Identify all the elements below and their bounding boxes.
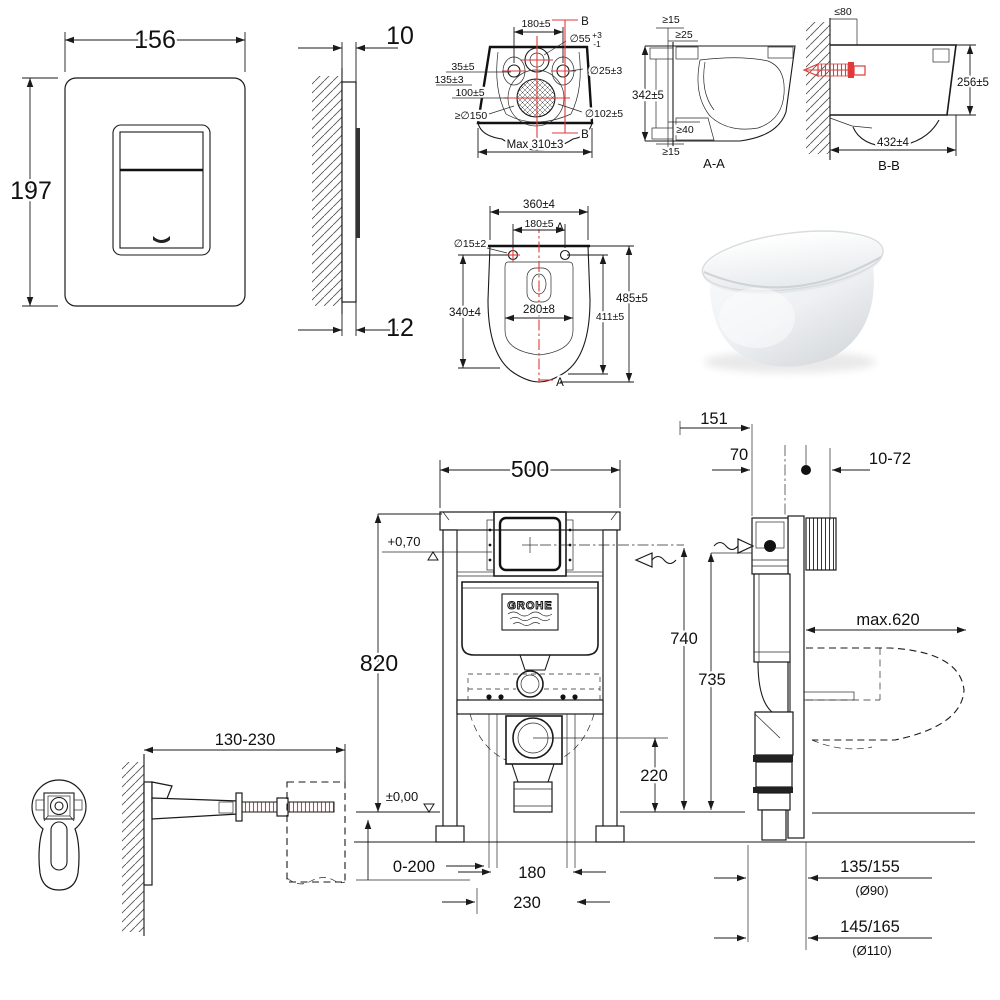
dim-bb-depth: 432±4 bbox=[877, 137, 909, 149]
dim-outlet-a: 135/155 bbox=[840, 858, 900, 876]
dim-fixing-dia: ∅25±3 bbox=[590, 65, 623, 77]
wall-section bbox=[806, 518, 836, 570]
dim-floor-adjust: 0-200 bbox=[393, 858, 435, 876]
dim-wall-panel: 10-72 bbox=[869, 450, 911, 468]
view-frame-side: 151 70 10-72 bbox=[645, 410, 975, 958]
drain-bend bbox=[506, 716, 562, 812]
level-top: +0,70 bbox=[388, 534, 421, 549]
dim-tv-340: 340±4 bbox=[449, 307, 481, 319]
wall-reference-point bbox=[801, 465, 811, 475]
technical-drawing: 156 197 10 12 bbox=[0, 0, 1000, 1000]
dim-tv-width: 360±4 bbox=[523, 199, 555, 211]
dim-plate-thickness-bottom: 12 bbox=[386, 314, 414, 342]
dim-plate-height: 197 bbox=[10, 177, 52, 205]
dim-drain-height: 220 bbox=[640, 767, 668, 785]
view-frame-front: 500 GROHE bbox=[354, 456, 975, 914]
technical-drawing-sheet: 156 197 10 12 bbox=[0, 0, 1000, 1000]
section-mark-A-bottom: A bbox=[556, 377, 564, 389]
dim-tv-411: 411±5 bbox=[596, 311, 625, 323]
dim-tv-hole-dia: ∅15±2 bbox=[454, 238, 487, 250]
level-zero: ±0,00 bbox=[386, 789, 418, 804]
view-toilet-rear: B B 180±5 ∅55 +3 -1 35±5 135±3 100±5 ∅25… bbox=[434, 16, 623, 158]
view-flush-plate-side: 10 12 bbox=[298, 22, 414, 342]
bracket-side-view bbox=[122, 754, 345, 936]
dim-plate-width: 156 bbox=[134, 26, 176, 54]
section-mark-A-top: A bbox=[556, 222, 564, 234]
dim-inlet-dia: ∅55 bbox=[570, 33, 591, 45]
dim-rv-135: 135±3 bbox=[434, 74, 463, 86]
dim-tv-inner-width: 280±8 bbox=[523, 304, 555, 316]
dim-aa-40: ≥40 bbox=[676, 124, 694, 136]
view-toilet-top: A A 360±4 180±5 ∅15±2 340±4 280±8 411±5 … bbox=[449, 199, 648, 389]
dim-outlet-dia: ∅102±5 bbox=[585, 108, 623, 120]
view-flush-plate-front: 156 197 bbox=[10, 26, 245, 306]
frame-rail-left bbox=[443, 530, 457, 828]
dim-aa-height: 342±5 bbox=[632, 90, 664, 102]
grohe-logo: GROHE bbox=[507, 600, 552, 612]
dim-offset-180: 180 bbox=[518, 864, 546, 882]
view-section-bb: ≤80 256±5 432±4 B-B bbox=[804, 6, 989, 173]
dim-frame-width: 500 bbox=[511, 456, 549, 482]
dim-side-70: 70 bbox=[730, 446, 748, 464]
dim-max-width: Max 310±3 bbox=[507, 139, 564, 151]
dim-inlet-tol-dn: -1 bbox=[593, 39, 601, 49]
dim-height-740: 740 bbox=[670, 630, 698, 648]
section-mark-B-top: B bbox=[581, 16, 589, 28]
dim-height-735: 735 bbox=[698, 671, 726, 689]
dim-offset-230: 230 bbox=[513, 894, 541, 912]
dim-outlet-b-dia: (Ø110) bbox=[852, 943, 892, 958]
dim-aa-25: ≥25 bbox=[675, 29, 693, 41]
dim-outlet-a-dia: (Ø90) bbox=[855, 883, 888, 898]
view-wall-bracket: 130-230 bbox=[32, 731, 345, 936]
dim-bracket-range: 130-230 bbox=[215, 731, 276, 749]
dim-tv-hole-spacing: 180±5 bbox=[524, 218, 553, 230]
dim-aa-top: ≥15 bbox=[662, 14, 680, 26]
toilet-dashed-outline bbox=[804, 648, 964, 749]
dim-aa-bottom: ≥15 bbox=[662, 146, 680, 158]
label-section-aa: A-A bbox=[703, 156, 725, 171]
bracket-front-view bbox=[32, 780, 86, 890]
label-section-bb: B-B bbox=[878, 158, 900, 173]
dim-rv-100: 100±5 bbox=[455, 87, 484, 99]
dim-side-151: 151 bbox=[700, 410, 728, 428]
dim-hole-spacing: 180±5 bbox=[521, 18, 550, 30]
concealed-cistern: GROHE bbox=[462, 582, 598, 655]
dim-plate-thickness-top: 10 bbox=[386, 22, 414, 50]
section-mark-B-bottom: B bbox=[581, 129, 589, 141]
view-section-aa: ≥15 ≥25 342±5 ≥40 ≥15 A-A bbox=[632, 14, 795, 171]
dim-clearance-dia: ≥∅150 bbox=[455, 110, 488, 122]
dim-frame-height: 820 bbox=[360, 650, 398, 676]
dim-rv-35: 35±5 bbox=[451, 61, 474, 73]
flush-signal-arrow-right bbox=[714, 539, 753, 553]
frame-rail-right bbox=[603, 530, 617, 828]
cistern-side-profile bbox=[752, 518, 793, 840]
dim-bb-top: ≤80 bbox=[834, 6, 852, 18]
dim-tv-485: 485±5 bbox=[616, 293, 648, 305]
toilet-product-photo bbox=[699, 222, 887, 373]
flush-signal-arrow-left bbox=[636, 553, 676, 567]
dim-max-620: max.620 bbox=[856, 611, 919, 629]
ceramic-dashed-block bbox=[287, 782, 345, 882]
dim-outlet-b: 145/165 bbox=[840, 918, 900, 936]
dim-bb-height: 256±5 bbox=[957, 77, 989, 89]
